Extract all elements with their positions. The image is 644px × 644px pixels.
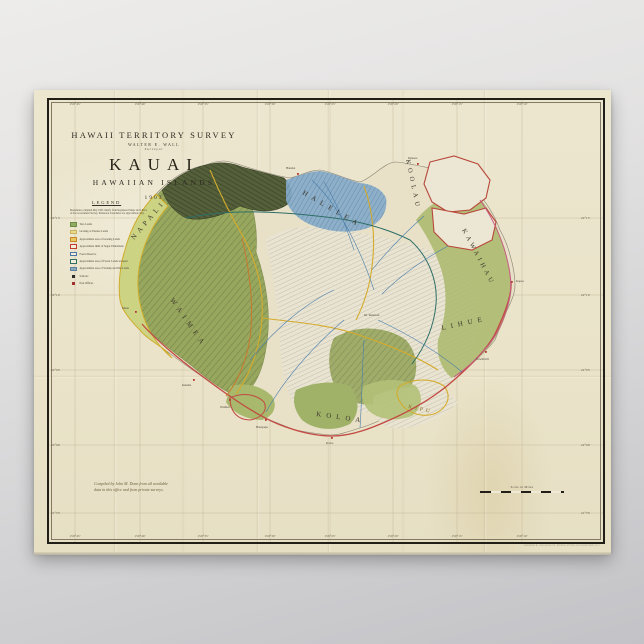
survey-title: HAWAII TERRITORY SURVEY bbox=[64, 130, 244, 140]
scale-label: Scale in Miles bbox=[480, 485, 564, 489]
legend-row: Approximate limit of Sugar Plantations bbox=[70, 243, 200, 250]
latitude-tick: 22°05' bbox=[51, 368, 60, 372]
place-label-waialeale: Mt. Waialeale bbox=[363, 314, 380, 317]
legend-row: Schools bbox=[70, 273, 200, 280]
longitude-tick: 159°45' bbox=[69, 102, 80, 106]
longitude-tick: 159°35' bbox=[197, 102, 208, 106]
place-label-koloa-town: Koloa bbox=[326, 441, 334, 445]
legend-heading: LEGEND bbox=[92, 200, 200, 205]
legend-label: Approximate area of Grazing Lands bbox=[80, 238, 120, 241]
map-title: KAUAI bbox=[64, 155, 244, 175]
longitude-tick: 159°25' bbox=[324, 102, 335, 106]
place-label-hanalei: Hanalei bbox=[286, 166, 295, 170]
scale-bar: Scale in Miles bbox=[480, 485, 564, 493]
place-label-kapaa: Kapaa bbox=[516, 279, 524, 283]
legend-row: Grazing or Pasture Lands bbox=[70, 228, 200, 235]
legend-row: Taro Lands bbox=[70, 221, 200, 228]
longitude-tick: 159°10' bbox=[516, 534, 527, 538]
longitude-tick: 159°40' bbox=[134, 102, 145, 106]
place-label-waimea-town: Waimea bbox=[220, 405, 230, 409]
legend-label: Approximate limit of Sugar Plantations bbox=[80, 245, 124, 248]
map-subtitle: HAWAIIAN ISLANDS bbox=[64, 178, 244, 187]
compiled-note-line2: data in this office and from private sur… bbox=[94, 487, 168, 493]
legend-swatch-grazing bbox=[70, 237, 77, 242]
scale-bar-graphic bbox=[480, 491, 564, 493]
place-label-nawiliwili: Nawiliwili bbox=[476, 357, 489, 361]
legend: LEGEND Boundaries compiled May 1903 chie… bbox=[70, 200, 200, 287]
latitude-tick: 22°05' bbox=[581, 368, 590, 372]
place-label-kilauea: Kilauea bbox=[408, 156, 418, 160]
legend-label: Forest Reserve bbox=[80, 253, 97, 256]
map-poster: NAPALI HALELEA KOOLAU KAWAIHAU LIHUE KOL… bbox=[34, 90, 611, 552]
printer-imprint: ANDREW B. GRAHAM CO. PHOTO-LITHO. WASHIN… bbox=[524, 545, 601, 547]
legend-swatch-pasture bbox=[70, 230, 77, 235]
longitude-tick: 159°15' bbox=[451, 102, 462, 106]
longitude-tick: 159°10' bbox=[516, 102, 527, 106]
legend-items: Taro Lands Grazing or Pasture Lands Appr… bbox=[70, 221, 200, 288]
longitude-tick: 159°30' bbox=[264, 534, 275, 538]
latitude-tick: 22°00' bbox=[581, 443, 590, 447]
legend-swatch-swamp bbox=[70, 267, 77, 272]
legend-label: Approximate area of Swamp and Wet Lands bbox=[80, 267, 130, 270]
longitude-tick: 159°30' bbox=[264, 102, 275, 106]
legend-label: Taro Lands bbox=[80, 223, 93, 226]
legend-row: Approximate area of Forest Lands set apa… bbox=[70, 258, 200, 265]
place-label-kekaha: Kekaha bbox=[182, 383, 192, 387]
legend-row: Approximate area of Grazing Lands bbox=[70, 236, 200, 243]
latitude-tick: 22°10' bbox=[581, 293, 590, 297]
longitude-tick: 159°25' bbox=[324, 534, 335, 538]
compiled-note: Compiled by John M. Donn from all availa… bbox=[94, 481, 168, 492]
longitude-tick: 159°15' bbox=[451, 534, 462, 538]
legend-row: Forest Reserve bbox=[70, 250, 200, 257]
longitude-tick: 159°20' bbox=[387, 534, 398, 538]
longitude-tick: 159°20' bbox=[387, 102, 398, 106]
longitude-tick: 159°45' bbox=[69, 534, 80, 538]
place-label-mana: Mana bbox=[122, 306, 129, 310]
legend-swatch-post-offices bbox=[72, 282, 75, 285]
latitude-tick: 21°55' bbox=[51, 511, 60, 515]
legend-label: Approximate area of Forest Lands set apa… bbox=[80, 260, 128, 263]
place-label-hanapepe: Hanapepe bbox=[256, 425, 269, 429]
longitude-tick: 159°40' bbox=[134, 534, 145, 538]
legend-swatch-sugar bbox=[70, 244, 77, 249]
legend-label: Grazing or Pasture Lands bbox=[80, 230, 109, 233]
legend-swatch-taro bbox=[70, 222, 77, 227]
latitude-tick: 22°10' bbox=[51, 293, 60, 297]
longitude-tick: 159°35' bbox=[197, 534, 208, 538]
legend-swatch-forest-lands bbox=[70, 259, 77, 264]
legend-row: Post Offices bbox=[70, 280, 200, 287]
legend-swatch-forest-reserve bbox=[70, 252, 77, 257]
title-block: HAWAII TERRITORY SURVEY WALTER E. WALL S… bbox=[64, 130, 244, 201]
product-stage: NAPALI HALELEA KOOLAU KAWAIHAU LIHUE KOL… bbox=[0, 0, 644, 644]
legend-row: Approximate area of Swamp and Wet Lands bbox=[70, 265, 200, 272]
latitude-tick: 21°55' bbox=[581, 511, 590, 515]
legend-note: Boundaries compiled May 1903 chiefly fro… bbox=[70, 209, 200, 216]
compiled-note-line1: Compiled by John M. Donn from all availa… bbox=[94, 481, 168, 487]
latitude-tick: 22°15' bbox=[581, 216, 590, 220]
legend-label: Schools bbox=[79, 275, 88, 278]
legend-note-line2: of the Government Survey. Plantation bou… bbox=[70, 212, 200, 215]
legend-swatch-schools bbox=[72, 275, 75, 278]
latitude-tick: 22°00' bbox=[51, 443, 60, 447]
legend-label: Post Offices bbox=[79, 282, 93, 285]
latitude-tick: 22°15' bbox=[51, 216, 60, 220]
surveyor-role: Surveyor bbox=[64, 147, 244, 151]
